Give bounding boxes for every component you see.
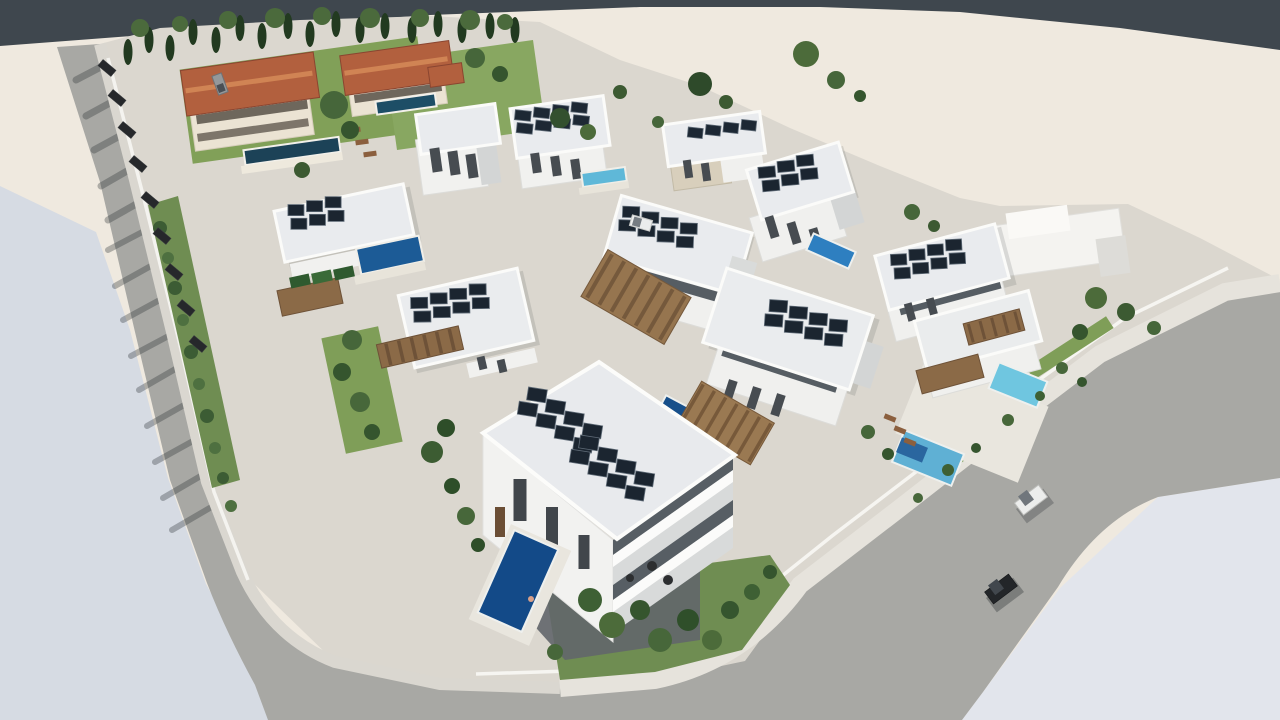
solar-panel-cell: [563, 411, 584, 427]
solar-panel-cell: [606, 473, 627, 489]
olive-tree: [219, 11, 237, 29]
garden-tree: [1085, 287, 1107, 309]
villa-k-wood-door: [495, 507, 505, 537]
sidewalk-bush: [1077, 377, 1087, 387]
solar-panel-cell: [625, 485, 646, 501]
solar-panel-cell: [535, 120, 552, 132]
tip-tree: [677, 609, 699, 631]
architectural-render: [0, 0, 1280, 720]
tip-tree: [721, 601, 739, 619]
solar-panel-cell: [809, 312, 828, 325]
solar-panel-cell: [762, 179, 780, 191]
garden-tree: [904, 204, 920, 220]
tip-tree: [744, 584, 760, 600]
garden-tree: [333, 363, 351, 381]
render-viewport: [0, 0, 1280, 720]
garden-tree: [1147, 321, 1161, 335]
hedge-bush: [177, 314, 189, 326]
sidewalk-bush: [942, 464, 954, 476]
solar-panel-cell: [469, 284, 486, 295]
olive-tree: [411, 9, 429, 27]
sidewalk-bush: [971, 443, 981, 453]
garden-tree: [465, 48, 485, 68]
solar-panel-cell: [325, 197, 341, 208]
villa-k-window: [579, 535, 590, 569]
solar-panel-cell: [472, 297, 489, 308]
solar-panel-cell: [705, 124, 721, 136]
villa-k-window: [514, 479, 527, 521]
garden-tree: [437, 419, 455, 437]
cypress-tree: [258, 23, 267, 49]
tip-tree: [763, 565, 777, 579]
solar-panel-cell: [615, 459, 636, 475]
solar-panel-cell: [545, 399, 566, 415]
planter-pot: [647, 561, 657, 571]
villa-k-window: [546, 507, 558, 545]
tip-tree: [702, 630, 722, 650]
olive-tree: [360, 8, 380, 28]
solar-panel-cell: [927, 244, 944, 256]
tip-tree: [630, 600, 650, 620]
solar-panel-cell: [569, 449, 590, 465]
cypress-tree: [212, 27, 221, 53]
solar-panel-cell: [758, 166, 776, 178]
cypress-tree: [381, 13, 390, 39]
solar-panel-cell: [433, 306, 450, 317]
sidewalk-bush: [1002, 414, 1014, 426]
solar-panel-cell: [796, 154, 814, 166]
solar-panel-cell: [723, 122, 739, 134]
solar-panel-cell: [769, 300, 788, 313]
cypress-tree: [166, 35, 175, 61]
solar-panel-cell: [533, 107, 550, 119]
garden-tree: [688, 72, 712, 96]
solar-panel-cell: [288, 205, 304, 216]
sidewalk-bush: [913, 493, 923, 503]
solar-panel-cell: [527, 387, 548, 403]
garden-tree: [854, 90, 866, 102]
swimmer: [528, 596, 534, 602]
olive-tree: [131, 19, 149, 37]
solar-panel-cell: [912, 262, 929, 274]
garden-tree: [294, 162, 310, 178]
solar-panel-cell: [764, 314, 783, 327]
garden-tree: [861, 425, 875, 439]
garden-tree: [457, 507, 475, 525]
garden-tree: [364, 424, 380, 440]
solar-panel-cell: [800, 168, 818, 180]
tip-tree: [547, 644, 563, 660]
tip-tree: [578, 588, 602, 612]
solar-panel-cell: [804, 327, 823, 340]
solar-panel-cell: [777, 160, 795, 172]
solar-panel-cell: [680, 223, 697, 235]
solar-panel-cell: [554, 425, 575, 441]
hedge-bush: [200, 409, 214, 423]
solar-panel-cell: [945, 239, 962, 251]
solar-panel-cell: [634, 471, 655, 487]
solar-panel-cell: [516, 123, 533, 135]
garden-tree: [471, 538, 485, 552]
garden-tree: [652, 116, 664, 128]
garden-tree: [550, 108, 570, 128]
hedge-bush: [209, 442, 221, 454]
solar-panel-cell: [781, 173, 799, 185]
solar-panel-cell: [687, 127, 703, 139]
solar-panel-cell: [931, 257, 948, 269]
sidewalk-bush: [1056, 362, 1068, 374]
cypress-tree: [486, 13, 495, 39]
solar-panel-cell: [824, 333, 843, 346]
sidewalk-bush: [1035, 391, 1045, 401]
cypress-tree: [189, 19, 198, 45]
solar-panel-cell: [307, 201, 323, 212]
solar-panel-cell: [411, 297, 428, 308]
solar-panel-cell: [661, 217, 678, 229]
solar-panel-cell: [949, 252, 966, 264]
garden-tree: [492, 66, 508, 82]
planter-pot: [626, 574, 634, 582]
planter-pot: [663, 575, 673, 585]
solar-panel-cell: [536, 413, 557, 429]
olive-tree: [497, 14, 513, 30]
solar-panel-cell: [676, 236, 693, 248]
cypress-tree: [124, 39, 133, 65]
solar-panel-cell: [894, 267, 911, 279]
garden-tree: [882, 448, 894, 460]
garden-tree: [350, 392, 370, 412]
olive-tree: [460, 10, 480, 30]
solar-panel-cell: [909, 249, 926, 261]
garden-tree: [827, 71, 845, 89]
solar-panel-cell: [657, 231, 674, 243]
garden-tree: [793, 41, 819, 67]
garden-tree: [421, 441, 443, 463]
garden-tree: [444, 478, 460, 494]
garden-tree: [341, 121, 359, 139]
hedge-bush: [193, 378, 205, 390]
garden-tree: [1072, 324, 1088, 340]
solar-panel-cell: [291, 218, 307, 229]
garden-tree: [342, 330, 362, 350]
solar-panel-cell: [430, 293, 447, 304]
solar-panel-cell: [517, 401, 538, 417]
cypress-tree: [332, 11, 341, 37]
white-block-building-side: [1096, 235, 1131, 277]
shed-terracotta-roof: [428, 63, 464, 88]
solar-panel-cell: [450, 288, 467, 299]
solar-panel-cell: [453, 302, 470, 313]
hedge-bush: [217, 472, 229, 484]
solar-panel-cell: [328, 210, 344, 221]
olive-tree: [313, 7, 331, 25]
garden-tree: [320, 91, 348, 119]
garden-tree: [1117, 303, 1135, 321]
solar-panel-cell: [597, 447, 618, 463]
garden-tree: [719, 95, 733, 109]
solar-panel-cell: [741, 119, 757, 131]
solar-panel-cell: [890, 254, 907, 266]
olive-tree: [265, 8, 285, 28]
solar-panel-cell: [414, 311, 431, 322]
hedge-bush: [162, 252, 174, 264]
garden-tree: [928, 220, 940, 232]
solar-panel-cell: [789, 306, 808, 319]
garden-tree: [613, 85, 627, 99]
solar-panel-cell: [309, 214, 325, 225]
garden-tree: [580, 124, 596, 140]
cypress-tree: [306, 21, 315, 47]
hedge-bush: [168, 281, 182, 295]
tip-tree: [648, 628, 672, 652]
solar-panel-cell: [588, 461, 609, 477]
hedge-bush: [225, 500, 237, 512]
solar-panel-cell: [829, 319, 848, 332]
solar-panel-cell: [784, 320, 803, 333]
olive-tree: [172, 16, 188, 32]
cypress-tree: [434, 11, 443, 37]
solar-panel-cell: [571, 102, 588, 114]
solar-panel-cell: [514, 110, 531, 122]
tip-tree: [599, 612, 625, 638]
solar-panel-cell: [579, 435, 600, 451]
